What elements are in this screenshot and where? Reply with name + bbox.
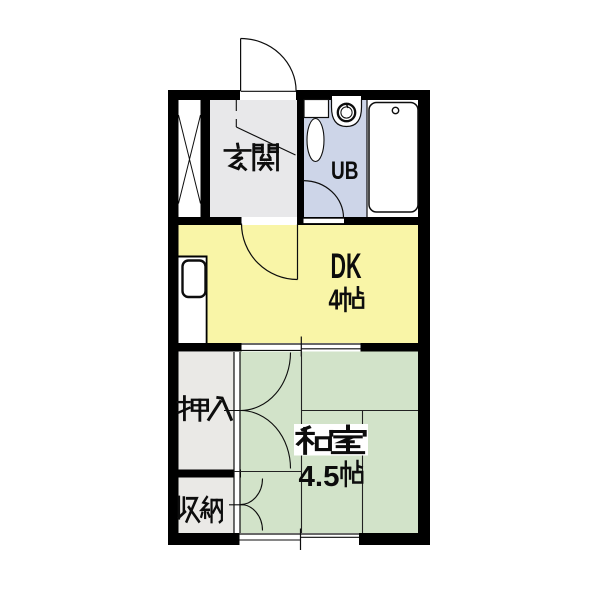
svg-text:4.5: 4.5	[299, 461, 340, 493]
svg-text:4: 4	[329, 285, 341, 317]
svg-text:UB: UB	[331, 157, 359, 185]
svg-text:DK: DK	[331, 247, 362, 286]
